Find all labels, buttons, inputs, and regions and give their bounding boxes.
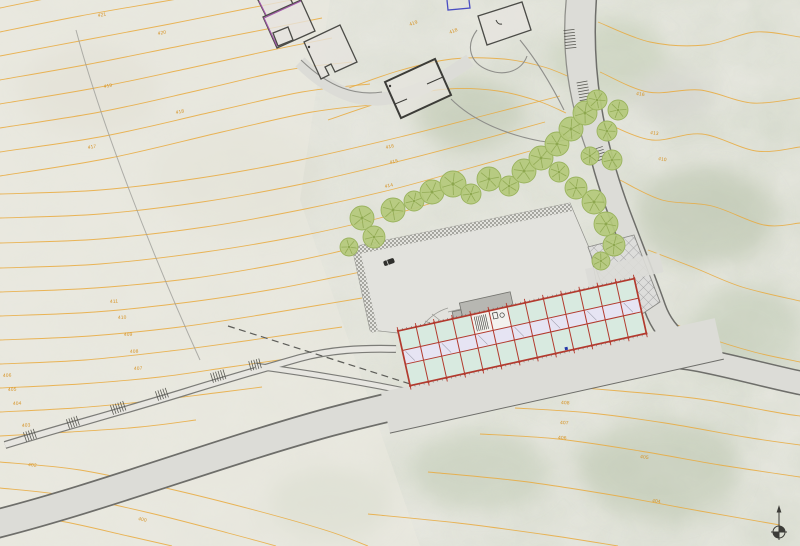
fixture-marker <box>564 347 568 351</box>
house-corner-dot <box>389 85 391 87</box>
tree-symbol <box>363 226 385 248</box>
contour-elevation-label: 407 <box>134 366 143 372</box>
contour-elevation-label: 405 <box>8 387 17 393</box>
site-plan-canvas: 4214204194184174194184164154144164134104… <box>0 0 800 546</box>
contour-elevation-label: 408 <box>561 400 570 406</box>
tree-symbol <box>597 121 617 141</box>
contour-elevation-label: 409 <box>124 332 133 338</box>
contour-elevation-label: 411 <box>110 299 119 305</box>
contour-elevation-label: 404 <box>652 498 661 505</box>
contour-elevation-label: 410 <box>118 315 127 321</box>
contour-elevation-label: 405 <box>640 454 649 461</box>
tree-symbol <box>603 234 625 256</box>
tree-symbol <box>592 252 610 270</box>
contour-elevation-label: 407 <box>560 420 569 426</box>
contour-elevation-label: 408 <box>130 349 139 355</box>
contour-elevation-label: 413 <box>650 130 659 137</box>
tree-symbol <box>581 147 599 165</box>
tree-symbol <box>549 162 569 182</box>
tree-symbol <box>608 100 628 120</box>
tree-symbol <box>477 167 501 191</box>
contour-elevation-label: 403 <box>22 422 31 429</box>
tree-symbol <box>582 190 606 214</box>
contour-elevation-label: 402 <box>28 462 37 469</box>
site-plan-sheet: 4214204194184174194184164154144164134104… <box>0 0 800 546</box>
tree-symbol <box>461 184 481 204</box>
house-corner-dot <box>308 46 310 48</box>
tree-symbol <box>340 238 358 256</box>
contour-elevation-label: 406 <box>558 435 567 441</box>
contour-elevation-label: 404 <box>13 401 22 407</box>
contour-elevation-label: 406 <box>3 373 12 379</box>
tree-symbol <box>602 150 622 170</box>
tree-symbol <box>381 198 405 222</box>
tree-symbol <box>587 90 607 110</box>
tree-symbol <box>594 212 618 236</box>
contour-elevation-label: 416 <box>636 91 645 98</box>
